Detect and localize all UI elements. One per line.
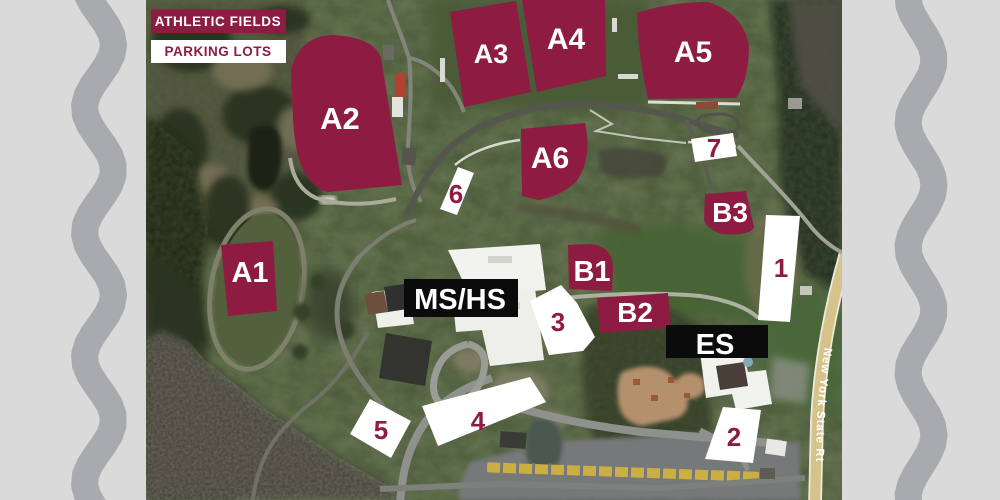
svg-text:A1: A1 — [231, 257, 268, 289]
svg-text:A5: A5 — [674, 36, 712, 69]
svg-text:1: 1 — [774, 253, 788, 283]
svg-text:B2: B2 — [617, 297, 653, 328]
svg-text:MS/HS: MS/HS — [414, 284, 506, 316]
svg-text:7: 7 — [707, 133, 721, 163]
svg-text:ATHLETIC FIELDS: ATHLETIC FIELDS — [155, 14, 282, 29]
svg-text:B1: B1 — [573, 256, 610, 288]
svg-text:2: 2 — [727, 422, 741, 452]
svg-text:PARKING LOTS: PARKING LOTS — [165, 44, 272, 59]
svg-text:4: 4 — [471, 406, 486, 436]
svg-text:5: 5 — [374, 415, 388, 445]
svg-text:ES: ES — [696, 329, 735, 361]
svg-text:A4: A4 — [547, 23, 586, 56]
svg-text:A2: A2 — [320, 101, 360, 136]
svg-text:B3: B3 — [712, 197, 748, 228]
svg-text:A6: A6 — [531, 142, 569, 175]
svg-text:3: 3 — [551, 307, 565, 337]
svg-text:A3: A3 — [474, 39, 509, 69]
svg-text:6: 6 — [449, 179, 463, 209]
